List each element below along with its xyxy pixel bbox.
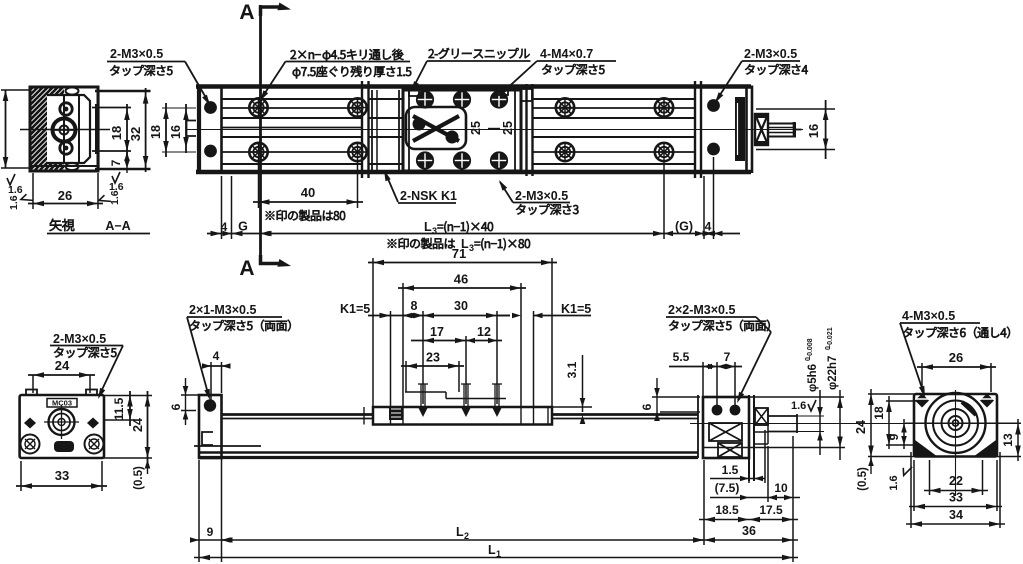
svg-text:6: 6 bbox=[640, 403, 654, 410]
svg-text:2×1-M3×0.5: 2×1-M3×0.5 bbox=[189, 303, 256, 317]
svg-text:3: 3 bbox=[432, 226, 437, 236]
svg-text:25: 25 bbox=[501, 121, 515, 135]
svg-text:11.5: 11.5 bbox=[112, 397, 126, 420]
svg-text:L: L bbox=[488, 543, 496, 557]
svg-text:1.6: 1.6 bbox=[8, 184, 23, 196]
svg-text:26: 26 bbox=[949, 350, 963, 365]
svg-text:2-M3×0.5: 2-M3×0.5 bbox=[744, 47, 797, 61]
svg-text:9: 9 bbox=[887, 433, 901, 440]
svg-text:18: 18 bbox=[109, 126, 124, 140]
svg-text:φ22h7: φ22h7 bbox=[827, 356, 839, 390]
svg-text:36: 36 bbox=[742, 524, 756, 538]
svg-text:2×2-M3×0.5: 2×2-M3×0.5 bbox=[668, 303, 735, 317]
svg-text:40: 40 bbox=[301, 185, 315, 200]
svg-text:33: 33 bbox=[55, 468, 69, 483]
svg-text:3.1: 3.1 bbox=[565, 361, 579, 378]
svg-text:2-M3×0.5: 2-M3×0.5 bbox=[110, 47, 163, 61]
svg-text:23: 23 bbox=[426, 351, 440, 365]
svg-text:L: L bbox=[424, 220, 432, 234]
svg-text:24: 24 bbox=[131, 418, 145, 432]
svg-text:3: 3 bbox=[469, 243, 474, 253]
svg-text:2: 2 bbox=[464, 531, 469, 541]
svg-text:4-M3×0.5: 4-M3×0.5 bbox=[902, 309, 955, 323]
svg-text:10: 10 bbox=[774, 481, 788, 495]
svg-text:7: 7 bbox=[109, 159, 123, 166]
svg-text:12: 12 bbox=[477, 325, 491, 339]
svg-text:4: 4 bbox=[213, 349, 220, 363]
svg-text:7: 7 bbox=[724, 350, 731, 364]
svg-text:5.5: 5.5 bbox=[673, 350, 690, 364]
svg-text:4: 4 bbox=[705, 220, 712, 234]
svg-text:2-M3×0.5: 2-M3×0.5 bbox=[53, 332, 106, 346]
svg-text:(0.5): (0.5) bbox=[857, 467, 869, 491]
svg-text:46: 46 bbox=[454, 272, 468, 287]
svg-text:G: G bbox=[238, 220, 248, 234]
svg-text:16: 16 bbox=[806, 124, 821, 138]
svg-text:1.6: 1.6 bbox=[8, 195, 20, 210]
svg-text:34: 34 bbox=[949, 508, 963, 522]
svg-text:24: 24 bbox=[55, 358, 70, 373]
svg-text:30: 30 bbox=[454, 299, 468, 313]
svg-text:9: 9 bbox=[207, 525, 214, 539]
svg-text:32: 32 bbox=[128, 127, 143, 141]
svg-text:K1=5: K1=5 bbox=[561, 302, 591, 316]
svg-text:16: 16 bbox=[169, 125, 183, 139]
svg-text:φ5h6: φ5h6 bbox=[807, 364, 819, 392]
svg-text:L: L bbox=[456, 525, 464, 539]
svg-text:26: 26 bbox=[58, 188, 72, 203]
svg-text:−0.008: −0.008 bbox=[807, 338, 814, 360]
svg-text:6: 6 bbox=[169, 403, 183, 410]
svg-text:1.6: 1.6 bbox=[791, 400, 806, 412]
svg-text:A: A bbox=[239, 257, 254, 280]
svg-text:2-M3×0.5: 2-M3×0.5 bbox=[515, 189, 568, 203]
svg-text:A: A bbox=[239, 1, 254, 24]
svg-text:17: 17 bbox=[430, 325, 444, 339]
svg-text:A−A: A−A bbox=[105, 219, 130, 233]
svg-text:1.6: 1.6 bbox=[888, 475, 900, 490]
svg-text:8: 8 bbox=[411, 299, 418, 313]
svg-text:1.6: 1.6 bbox=[109, 190, 121, 205]
svg-text:33: 33 bbox=[949, 491, 963, 505]
svg-text:22: 22 bbox=[949, 474, 963, 488]
svg-text:(7.5): (7.5) bbox=[715, 481, 740, 495]
svg-text:18: 18 bbox=[872, 406, 886, 420]
svg-text:−0.021: −0.021 bbox=[827, 327, 834, 349]
svg-text:25: 25 bbox=[469, 121, 483, 135]
svg-text:18.5: 18.5 bbox=[715, 503, 739, 517]
svg-text:1: 1 bbox=[496, 549, 501, 559]
svg-text:(0.5): (0.5) bbox=[133, 466, 145, 490]
svg-text:24: 24 bbox=[854, 420, 868, 434]
svg-text:4-M4×0.7: 4-M4×0.7 bbox=[540, 47, 593, 61]
svg-text:K1=5: K1=5 bbox=[340, 302, 370, 316]
svg-text:71: 71 bbox=[452, 246, 466, 261]
svg-text:(G): (G) bbox=[675, 220, 693, 234]
svg-text:1.5: 1.5 bbox=[722, 463, 739, 477]
svg-text:17.5: 17.5 bbox=[759, 503, 783, 517]
svg-text:13: 13 bbox=[1001, 433, 1015, 447]
svg-text:18: 18 bbox=[149, 125, 163, 139]
svg-text:2-NSK K1: 2-NSK K1 bbox=[400, 189, 457, 203]
